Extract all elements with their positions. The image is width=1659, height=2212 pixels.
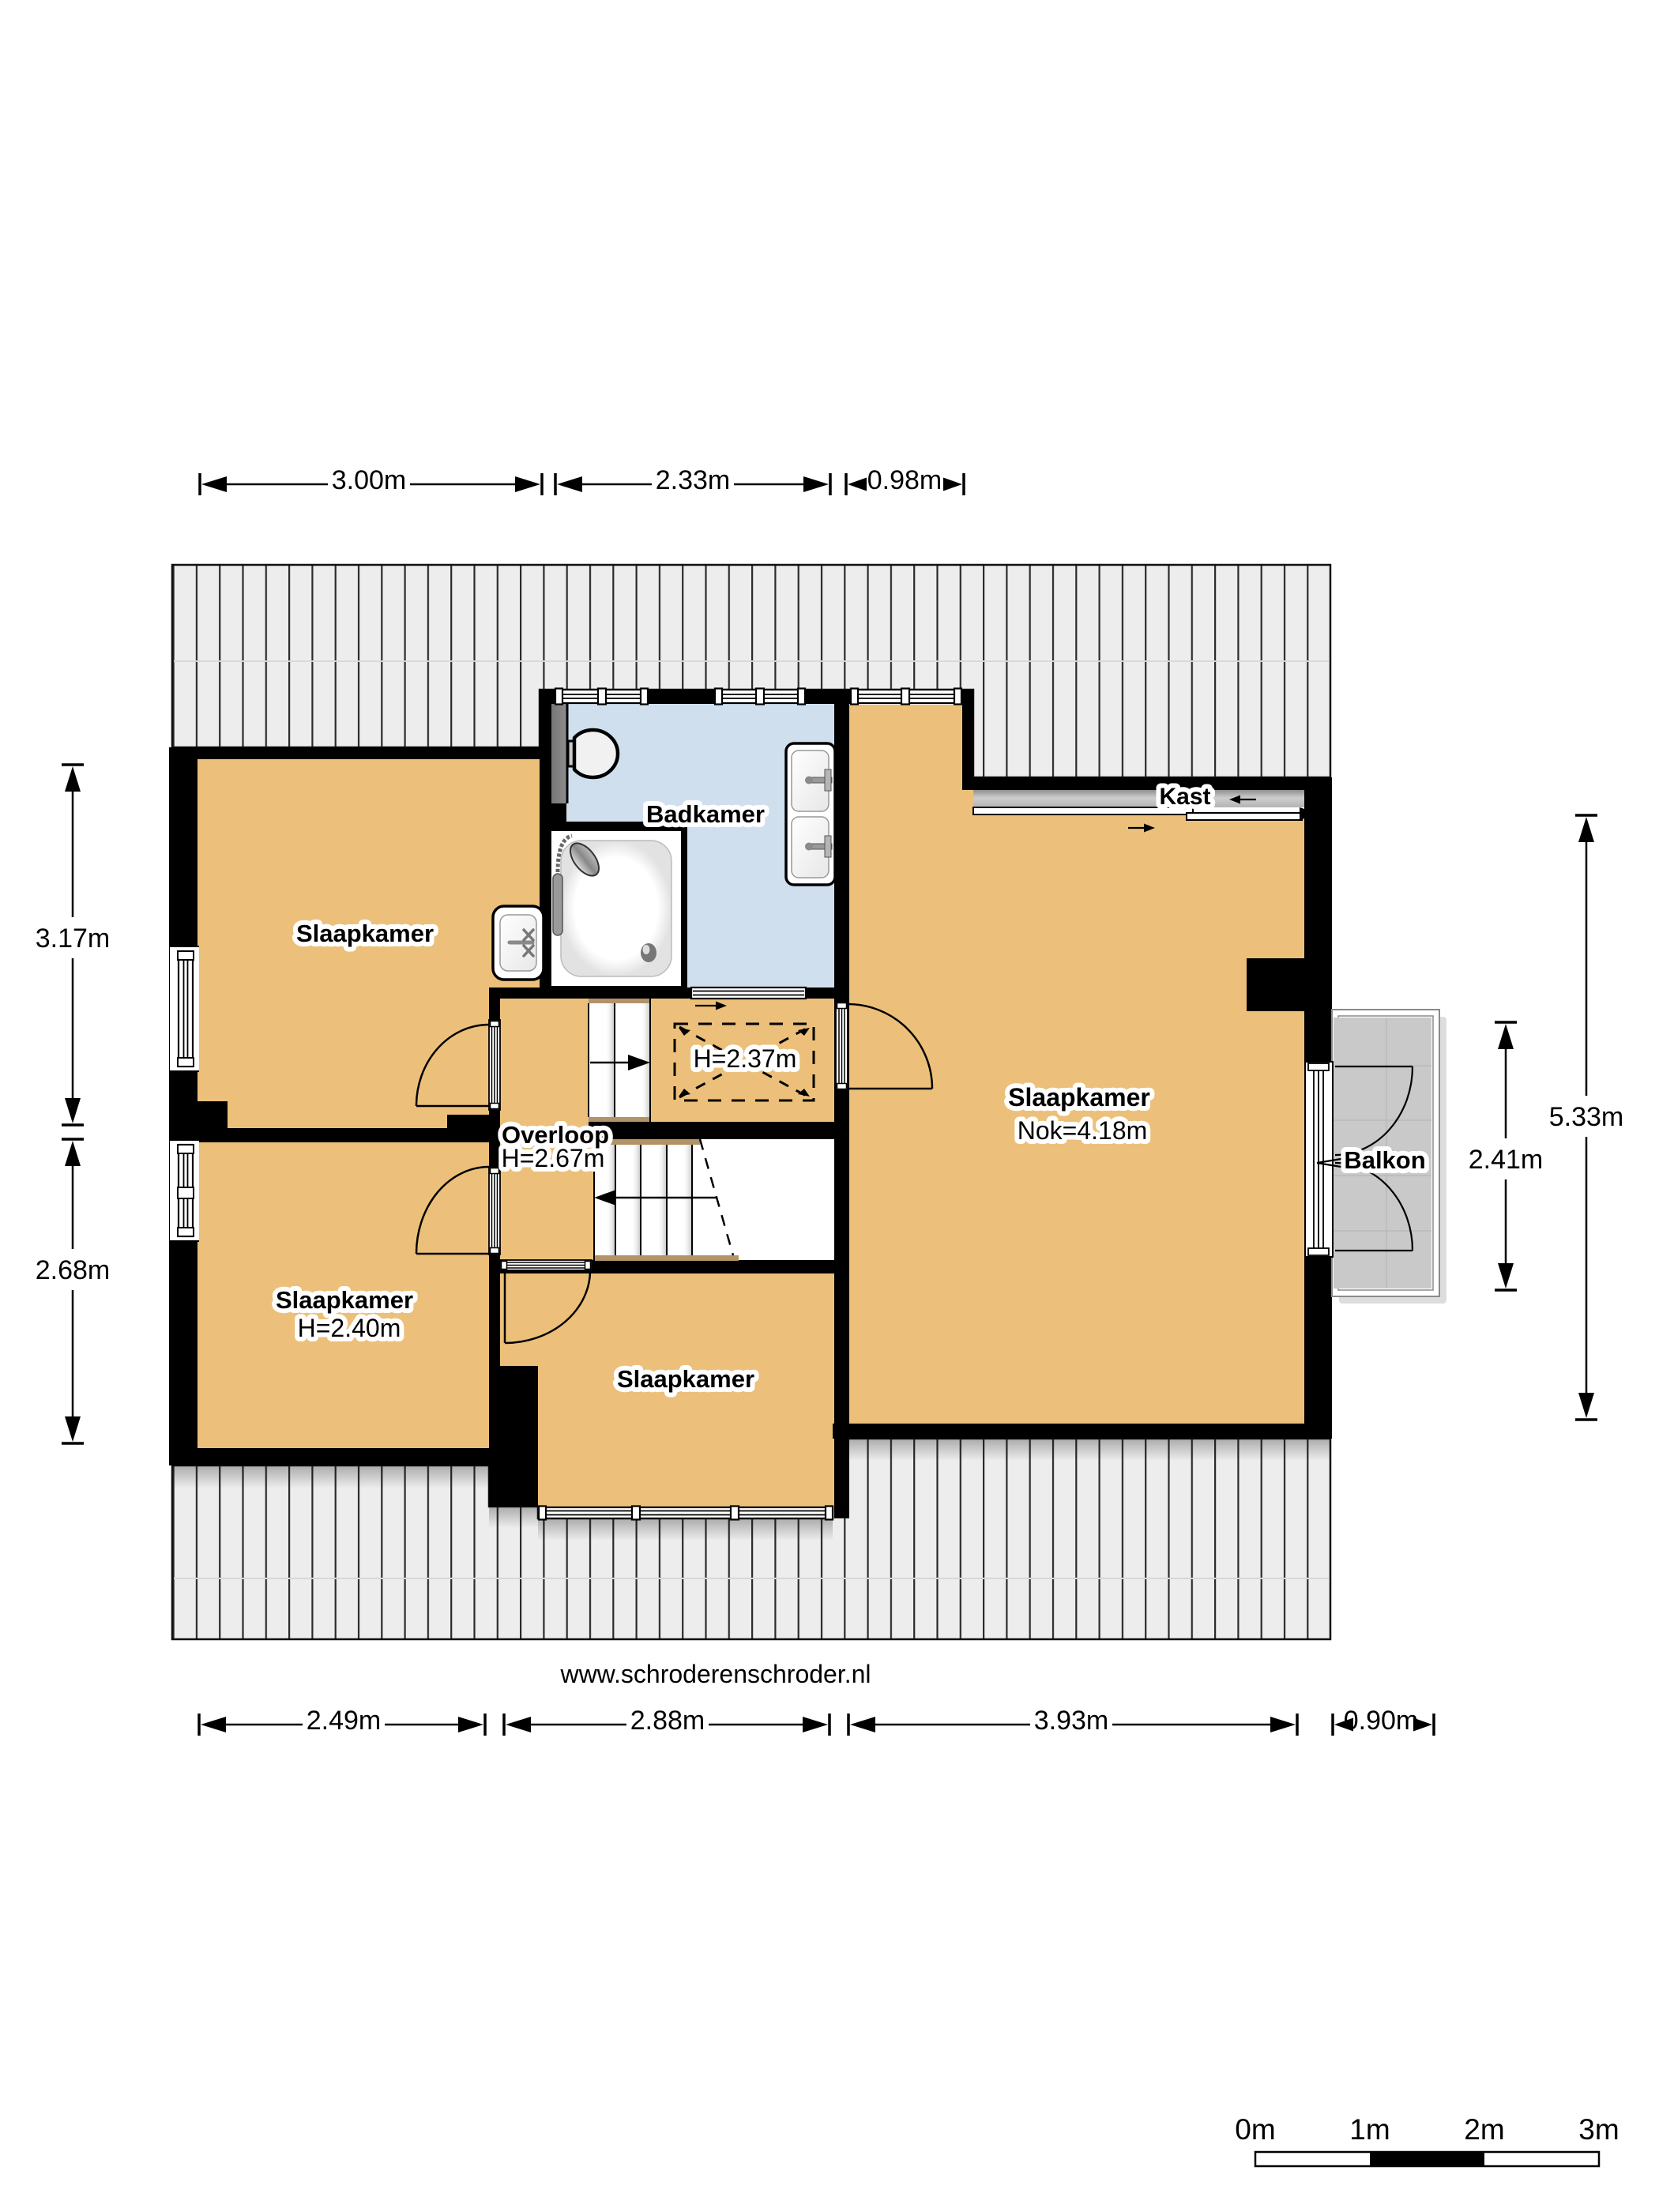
svg-text:2.49m: 2.49m [307, 1706, 382, 1736]
svg-text:Slaapkamer: Slaapkamer [296, 920, 434, 947]
svg-text:2.33m: 2.33m [656, 465, 731, 495]
svg-text:3.17m: 3.17m [36, 924, 111, 954]
svg-text:www.schroderenschroder.nl: www.schroderenschroder.nl [559, 1660, 871, 1688]
svg-text:3m: 3m [1578, 2113, 1619, 2146]
svg-text:2m: 2m [1464, 2113, 1504, 2146]
svg-text:3.93m: 3.93m [1034, 1706, 1109, 1736]
svg-text:Slaapkamer: Slaapkamer [1008, 1083, 1150, 1112]
svg-text:Nok=4.18m: Nok=4.18m [1018, 1116, 1148, 1145]
svg-text:Slaapkamer: Slaapkamer [276, 1286, 413, 1314]
svg-text:2.41m: 2.41m [1469, 1145, 1544, 1175]
svg-text:Balkon: Balkon [1344, 1146, 1425, 1174]
svg-text:0.90m: 0.90m [1344, 1706, 1419, 1736]
svg-text:Slaapkamer: Slaapkamer [617, 1365, 754, 1393]
svg-text:0.98m: 0.98m [867, 465, 942, 495]
svg-text:2.88m: 2.88m [630, 1706, 705, 1736]
svg-text:5.33m: 5.33m [1549, 1102, 1624, 1132]
svg-text:2.68m: 2.68m [36, 1255, 111, 1285]
svg-text:1m: 1m [1349, 2113, 1390, 2146]
svg-text:0m: 0m [1235, 2113, 1275, 2146]
svg-text:H=2.37m: H=2.37m [694, 1044, 797, 1073]
svg-text:Kast: Kast [1159, 784, 1210, 810]
svg-text:3.00m: 3.00m [332, 465, 407, 495]
svg-text:H=2.67m: H=2.67m [502, 1144, 605, 1172]
svg-text:Badkamer: Badkamer [646, 800, 765, 828]
svg-text:H=2.40m: H=2.40m [298, 1314, 401, 1342]
